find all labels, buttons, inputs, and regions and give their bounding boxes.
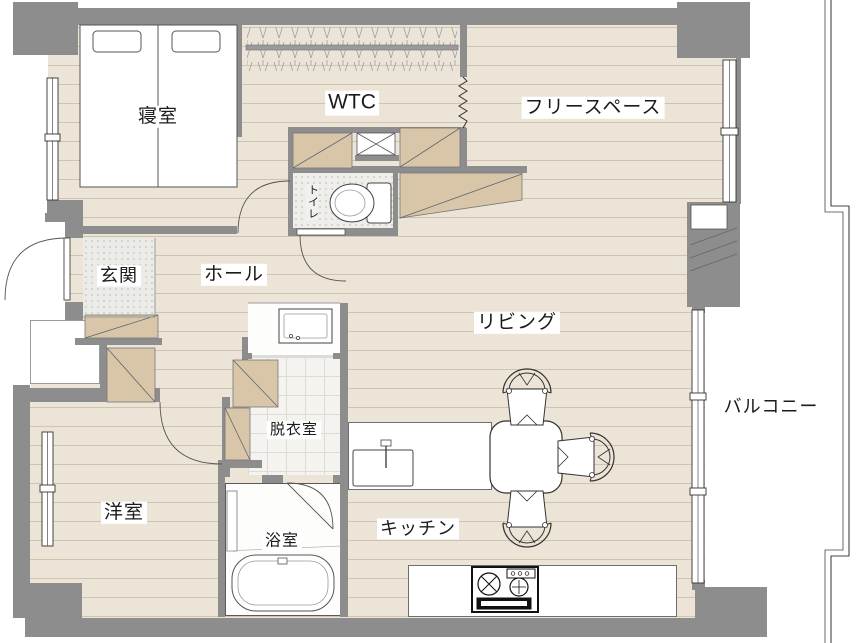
- washbasin-icon: [279, 309, 332, 343]
- room-label-free-space: フリースペース: [522, 97, 665, 119]
- room-label-wtc: WTC: [325, 91, 379, 116]
- hanger-rack-icon: [246, 27, 458, 71]
- door-arcs: [5, 181, 346, 529]
- counter-desk: [400, 173, 522, 218]
- toilet-door: [297, 229, 345, 235]
- room-label-western: 洋室: [101, 502, 147, 524]
- kitchen-sink-icon: [353, 440, 413, 486]
- room-label-bathroom: 浴室: [262, 533, 302, 552]
- room-label-balcony: バルコニー: [721, 396, 822, 417]
- balcony-railing: [825, 0, 849, 643]
- room-label-bedroom: 寝室: [135, 106, 181, 128]
- floor-plan: 寝室 WTC フリースペース トイレ 玄関 ホール リビング バルコニー 脱衣室…: [0, 0, 858, 643]
- room-label-entrance: 玄関: [97, 265, 141, 286]
- chair-icon: [503, 369, 551, 425]
- chair-icon: [558, 433, 614, 481]
- room-label-kitchen: キッチン: [377, 518, 459, 539]
- room-label-living: リビング: [474, 312, 560, 334]
- room-label-hall: ホール: [201, 264, 267, 286]
- room-label-dressing: 脱衣室: [267, 421, 321, 439]
- accordion-curtain-icon: [459, 77, 467, 128]
- toilet-icon: [330, 183, 391, 223]
- gas-stove-icon: [472, 567, 538, 612]
- dining-table-icon: [490, 421, 562, 493]
- room-label-toilet: トイレ: [307, 184, 318, 220]
- chair-icon: [503, 491, 551, 547]
- fixtures-overlay: [0, 0, 858, 643]
- pipe-space: [357, 133, 395, 155]
- pillar-detail: [690, 205, 737, 271]
